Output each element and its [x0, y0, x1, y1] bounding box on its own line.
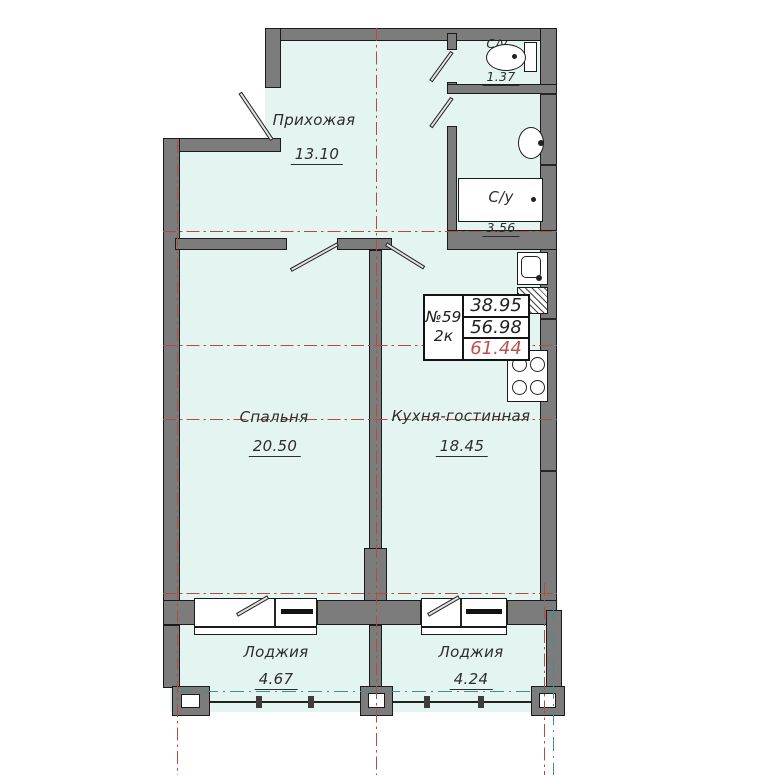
windowsill-kitchen	[421, 627, 507, 635]
room-label-bedroom: Спальня	[240, 409, 309, 426]
axis-vertical-left	[177, 140, 178, 775]
windowsill-bedroom	[194, 627, 317, 635]
wall-joint	[540, 318, 557, 320]
flat-info-box: №59 2к 38.95 56.98 61.44	[423, 294, 530, 361]
balcony-block-bedroom-divider	[274, 599, 276, 626]
washbasin-tap	[538, 140, 544, 146]
axis-vertical-middle	[376, 28, 377, 775]
wall-joint	[540, 470, 557, 472]
bathtub-tap	[531, 197, 536, 202]
wall-joint	[540, 164, 557, 166]
room-label-loggia-right: Лоджия	[439, 644, 504, 661]
room-area-wc: 1.37	[482, 70, 519, 84]
axis-teal-vertical	[553, 607, 554, 775]
wall-top	[265, 28, 557, 41]
flat-info-areas: 38.95 56.98 61.44	[464, 296, 528, 359]
axis-teal-horizontal	[178, 691, 553, 692]
room-area-loggia-right: 4.24	[450, 671, 493, 688]
room-label-kitchen: Кухня-гостинная	[392, 408, 531, 425]
room-area-bathroom: 3.56	[482, 221, 519, 235]
glazing-mullion	[478, 696, 484, 708]
flat-info-id: №59 2к	[425, 296, 464, 359]
wall-mid-a	[175, 238, 287, 250]
wall-bottom-a	[163, 600, 195, 625]
room-area-loggia-left: 4.67	[255, 671, 298, 688]
flat-area-living: 38.95	[464, 296, 528, 318]
wall-joint	[540, 93, 557, 95]
glazing-mullion	[308, 696, 314, 708]
toilet-dot	[512, 54, 517, 59]
flat-area-total: 56.98	[464, 318, 528, 340]
balcony-block-kitchen-divider	[460, 599, 462, 626]
pillar-left-core	[181, 694, 200, 708]
stove-burner	[512, 380, 527, 395]
stove-burner	[530, 357, 545, 372]
wall-wc-c	[447, 126, 457, 238]
room-area-kitchen: 18.45	[436, 438, 488, 455]
axis-vertical-right	[544, 583, 545, 775]
wall-entry-stub	[265, 28, 281, 88]
room-area-hallway: 13.10	[291, 146, 343, 163]
floor-plan: Прихожая 13.10 С/у 1.37 С/у 3.56 Спальня…	[0, 0, 777, 777]
stove-burner	[530, 380, 545, 395]
loggia-glazing-left	[210, 701, 360, 703]
room-label-hallway: Прихожая	[273, 112, 356, 129]
room-label-bathroom: С/у	[488, 189, 513, 206]
flat-area-with-loggia: 61.44	[464, 339, 528, 359]
window-kitchen-glass	[466, 609, 502, 614]
loggia-glazing-right	[393, 701, 531, 703]
room-area-bedroom: 20.50	[249, 438, 301, 455]
window-bedroom-glass	[281, 609, 313, 614]
room-label-loggia-left: Лоджия	[244, 644, 309, 661]
toilet-bowl-icon	[486, 44, 526, 71]
glazing-mullion	[424, 696, 430, 708]
wall-mid-b	[337, 238, 392, 250]
axis-horizontal-4	[163, 593, 557, 594]
flat-type: 2к	[434, 328, 453, 346]
wall-wc-a	[447, 33, 457, 50]
wall-bottom-b	[317, 600, 421, 625]
glazing-mullion	[256, 696, 262, 708]
kitchen-sink-tap	[536, 275, 542, 281]
flat-number: №59	[426, 309, 462, 327]
wall-left-top	[163, 138, 281, 152]
